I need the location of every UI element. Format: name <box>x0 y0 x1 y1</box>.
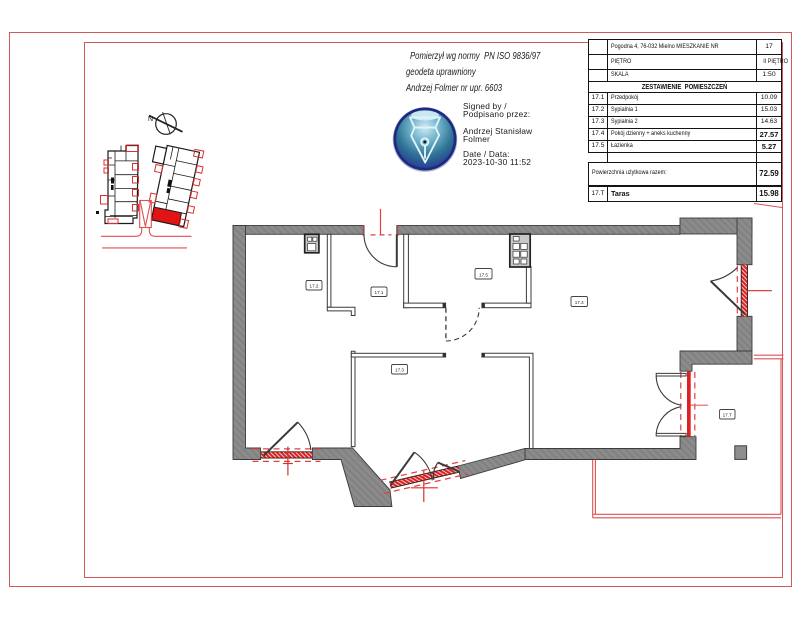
svg-text:17.3: 17.3 <box>395 368 404 373</box>
svg-text:17.4: 17.4 <box>575 300 584 305</box>
svg-text:17.5: 17.5 <box>479 272 488 277</box>
svg-text:17.1: 17.1 <box>375 290 384 295</box>
svg-text:N: N <box>148 116 153 123</box>
svg-text:17.T: 17.T <box>723 413 732 418</box>
svg-text:17.2: 17.2 <box>310 284 319 289</box>
